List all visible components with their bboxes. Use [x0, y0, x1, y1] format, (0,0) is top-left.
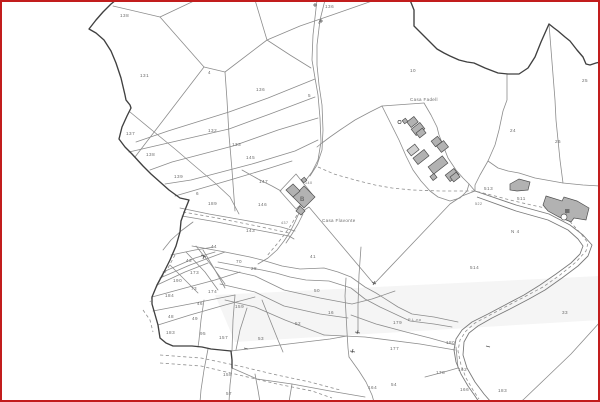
svg-text:49: 49 [192, 316, 198, 321]
svg-text:4: 4 [208, 70, 211, 75]
svg-text:522: 522 [475, 202, 483, 206]
svg-text:48: 48 [168, 314, 174, 319]
svg-text:157: 157 [219, 335, 228, 340]
svg-text:131: 131 [140, 73, 149, 78]
svg-text:138: 138 [120, 13, 129, 18]
svg-text:158: 158 [223, 372, 232, 377]
svg-text:P.L.no: P.L.no [408, 318, 422, 322]
svg-text:177: 177 [390, 346, 399, 351]
svg-text:24: 24 [510, 128, 516, 133]
svg-text:53: 53 [258, 336, 264, 341]
svg-text:6: 6 [196, 191, 199, 196]
svg-text:70: 70 [236, 259, 242, 264]
svg-text:139: 139 [174, 174, 183, 179]
svg-text:Casa Flavonte: Casa Flavonte [322, 218, 356, 223]
svg-text:41: 41 [310, 254, 316, 259]
svg-text:164: 164 [368, 385, 377, 390]
svg-text:54: 54 [391, 382, 397, 387]
svg-text:73: 73 [191, 286, 197, 291]
svg-text:52: 52 [295, 321, 301, 326]
svg-text:514: 514 [470, 265, 479, 270]
svg-text:174: 174 [208, 289, 217, 294]
svg-text:178: 178 [436, 370, 445, 375]
svg-text:25: 25 [582, 78, 588, 83]
svg-text:511: 511 [517, 196, 526, 201]
svg-text:10: 10 [410, 68, 416, 73]
svg-text:4: 4 [318, 20, 321, 25]
svg-text:183: 183 [498, 388, 507, 393]
svg-text:33: 33 [562, 310, 568, 315]
svg-text:50: 50 [314, 288, 320, 293]
svg-text:16: 16 [328, 310, 334, 315]
svg-text:437: 437 [281, 221, 289, 225]
svg-text:513: 513 [484, 186, 493, 191]
svg-text:95: 95 [200, 331, 206, 336]
svg-text:57: 57 [226, 391, 232, 396]
svg-text:26: 26 [555, 139, 561, 144]
svg-text:2: 2 [565, 211, 568, 216]
svg-text:137: 137 [126, 131, 135, 136]
svg-text:132: 132 [208, 128, 217, 133]
svg-text:184: 184 [165, 293, 174, 298]
svg-text:146: 146 [258, 202, 267, 207]
svg-text:145: 145 [246, 155, 255, 160]
svg-text:189: 189 [208, 201, 217, 206]
svg-text:28: 28 [251, 266, 257, 271]
svg-text:46: 46 [197, 301, 203, 306]
svg-text:143: 143 [246, 228, 255, 233]
svg-text:162: 162 [458, 367, 467, 372]
svg-text:173: 173 [190, 270, 199, 275]
svg-text:43: 43 [186, 258, 192, 263]
svg-text:147: 147 [259, 179, 268, 184]
svg-text:183: 183 [166, 330, 175, 335]
svg-text:5: 5 [308, 93, 311, 98]
svg-text:133: 133 [232, 142, 241, 147]
svg-text:180: 180 [446, 340, 455, 345]
svg-text:N 4: N 4 [511, 229, 520, 234]
svg-text:179: 179 [393, 320, 402, 325]
svg-text:138: 138 [146, 152, 155, 157]
svg-text:140: 140 [305, 181, 313, 185]
svg-text:136: 136 [325, 4, 334, 9]
svg-text:166: 166 [460, 387, 469, 392]
svg-text:190: 190 [173, 278, 182, 283]
svg-text:Casa Fadell: Casa Fadell [410, 97, 438, 102]
svg-text:136: 136 [256, 87, 265, 92]
svg-text:B: B [300, 197, 305, 203]
svg-text:44: 44 [211, 244, 217, 249]
svg-text:159: 159 [235, 304, 244, 309]
